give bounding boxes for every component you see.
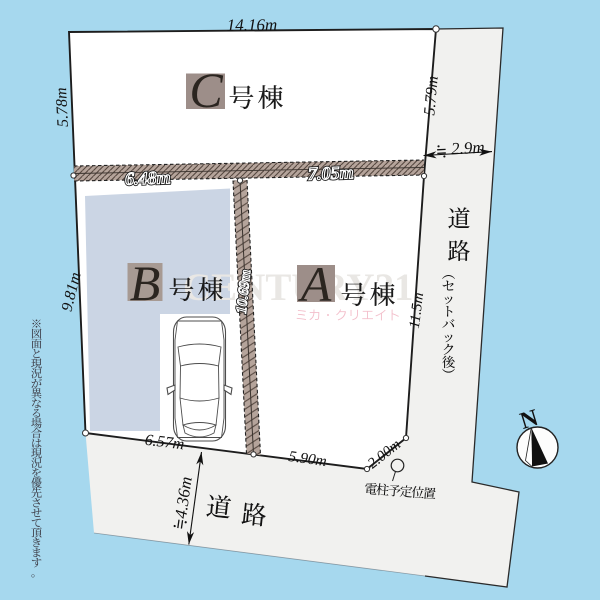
svg-text:A: A: [298, 256, 332, 312]
svg-text:5.78m: 5.78m: [53, 87, 72, 127]
svg-text:7.05m: 7.05m: [308, 162, 354, 184]
svg-text:5.79m: 5.79m: [421, 75, 441, 116]
svg-text:14.16m: 14.16m: [227, 15, 278, 34]
svg-text:C: C: [189, 62, 223, 118]
svg-text:B: B: [130, 255, 161, 311]
svg-text:2.9m: 2.9m: [451, 138, 485, 159]
svg-text:6.48m: 6.48m: [125, 167, 171, 189]
